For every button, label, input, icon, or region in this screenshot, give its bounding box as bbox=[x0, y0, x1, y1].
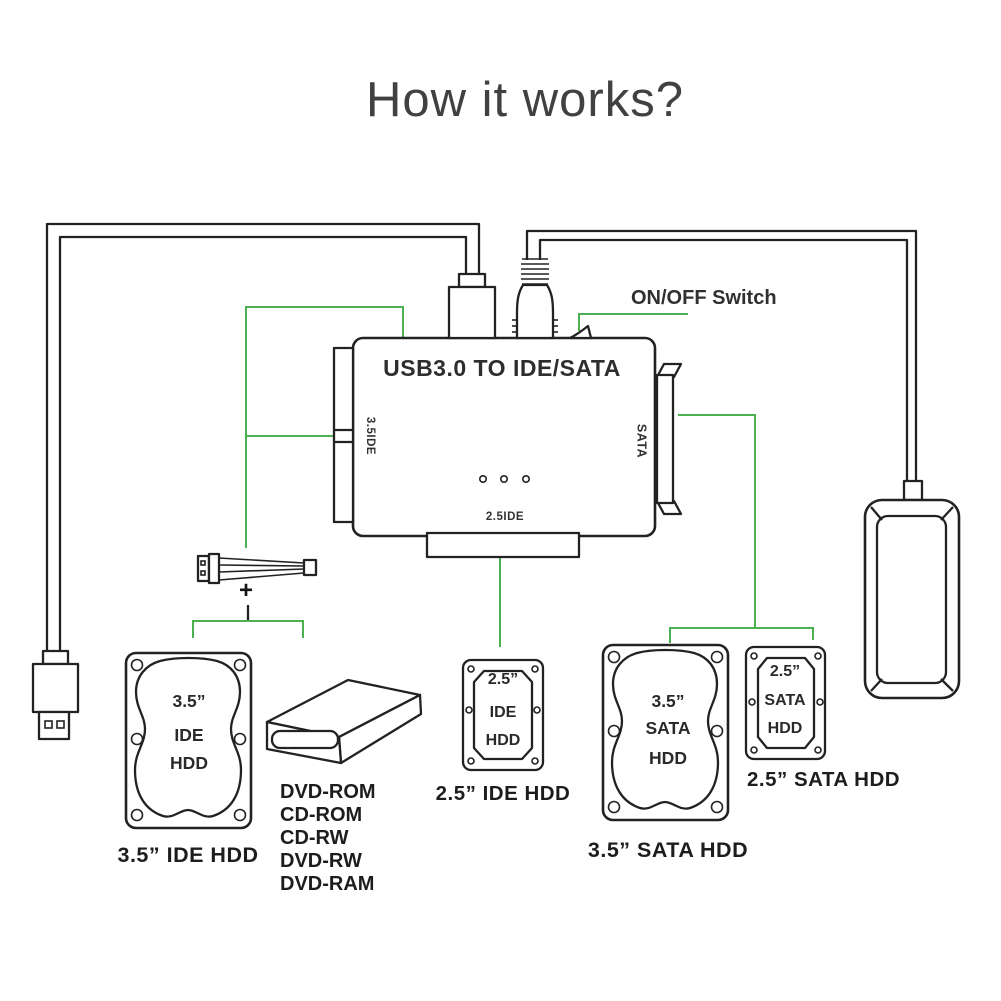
optical-type-dvdrom: DVD-ROM bbox=[280, 782, 376, 802]
adapter-title: USB3.0 TO IDE/SATA bbox=[383, 357, 621, 380]
usb-connector bbox=[449, 274, 495, 338]
port-sata-label: SATA bbox=[635, 424, 648, 458]
optical-type-cdrw: CD-RW bbox=[280, 828, 349, 848]
onoff-switch bbox=[570, 326, 591, 338]
hdd-35sata-face-size: 3.5” bbox=[651, 693, 684, 711]
hdd-35sata-label: 3.5” SATA HDD bbox=[588, 840, 748, 862]
hdd-25sata-face-size: 2.5” bbox=[770, 664, 800, 680]
port-25ide bbox=[427, 533, 579, 557]
hdd-25ide-face-size: 2.5” bbox=[488, 672, 518, 688]
port-25ide-label: 2.5IDE bbox=[486, 512, 524, 524]
page-title: How it works? bbox=[366, 76, 684, 125]
hdd-25ide-label: 2.5” IDE HDD bbox=[436, 784, 571, 805]
molex-wires bbox=[219, 558, 304, 580]
hdd-25ide-face-hdd: HDD bbox=[486, 733, 521, 749]
dc-plug-ribs bbox=[521, 259, 549, 284]
dc-plug bbox=[512, 259, 558, 338]
power-brick bbox=[865, 481, 959, 698]
hdd-35ide-label: 3.5” IDE HDD bbox=[117, 845, 258, 867]
diagram-canvas: How it works? ON/OFF Switch USB3.0 TO ID… bbox=[0, 0, 1001, 1001]
hdd-35sata-face-hdd: HDD bbox=[649, 750, 687, 768]
hdd-25sata-label: 2.5” SATA HDD bbox=[747, 770, 900, 791]
onoff-switch-label: ON/OFF Switch bbox=[631, 288, 777, 308]
optical-type-cdrom: CD-ROM bbox=[280, 805, 362, 825]
hdd-35ide-face-type: IDE bbox=[174, 727, 203, 745]
plus-sign: + bbox=[239, 579, 253, 603]
optical-drive-shape bbox=[267, 680, 421, 763]
optical-type-dvdram: DVD-RAM bbox=[280, 874, 374, 894]
optical-type-dvdrw: DVD-RW bbox=[280, 851, 362, 871]
molex-power-cable bbox=[198, 554, 316, 620]
sata-connection-line bbox=[670, 415, 813, 643]
usb-plug bbox=[33, 651, 78, 739]
hdd-25ide-face-type: IDE bbox=[490, 705, 517, 721]
switch-callout-line bbox=[579, 314, 688, 331]
port-35ide-label: 3.5IDE bbox=[363, 417, 375, 455]
hdd-35ide-face-hdd: HDD bbox=[170, 755, 208, 773]
hdd-25sata-face-hdd: HDD bbox=[768, 721, 803, 737]
port-sata bbox=[657, 364, 681, 514]
hdd-25sata-face-type: SATA bbox=[764, 693, 805, 709]
hdd-35ide-face-size: 3.5” bbox=[172, 693, 205, 711]
port-35ide bbox=[334, 348, 353, 522]
hdd-35sata-face-type: SATA bbox=[645, 720, 690, 738]
